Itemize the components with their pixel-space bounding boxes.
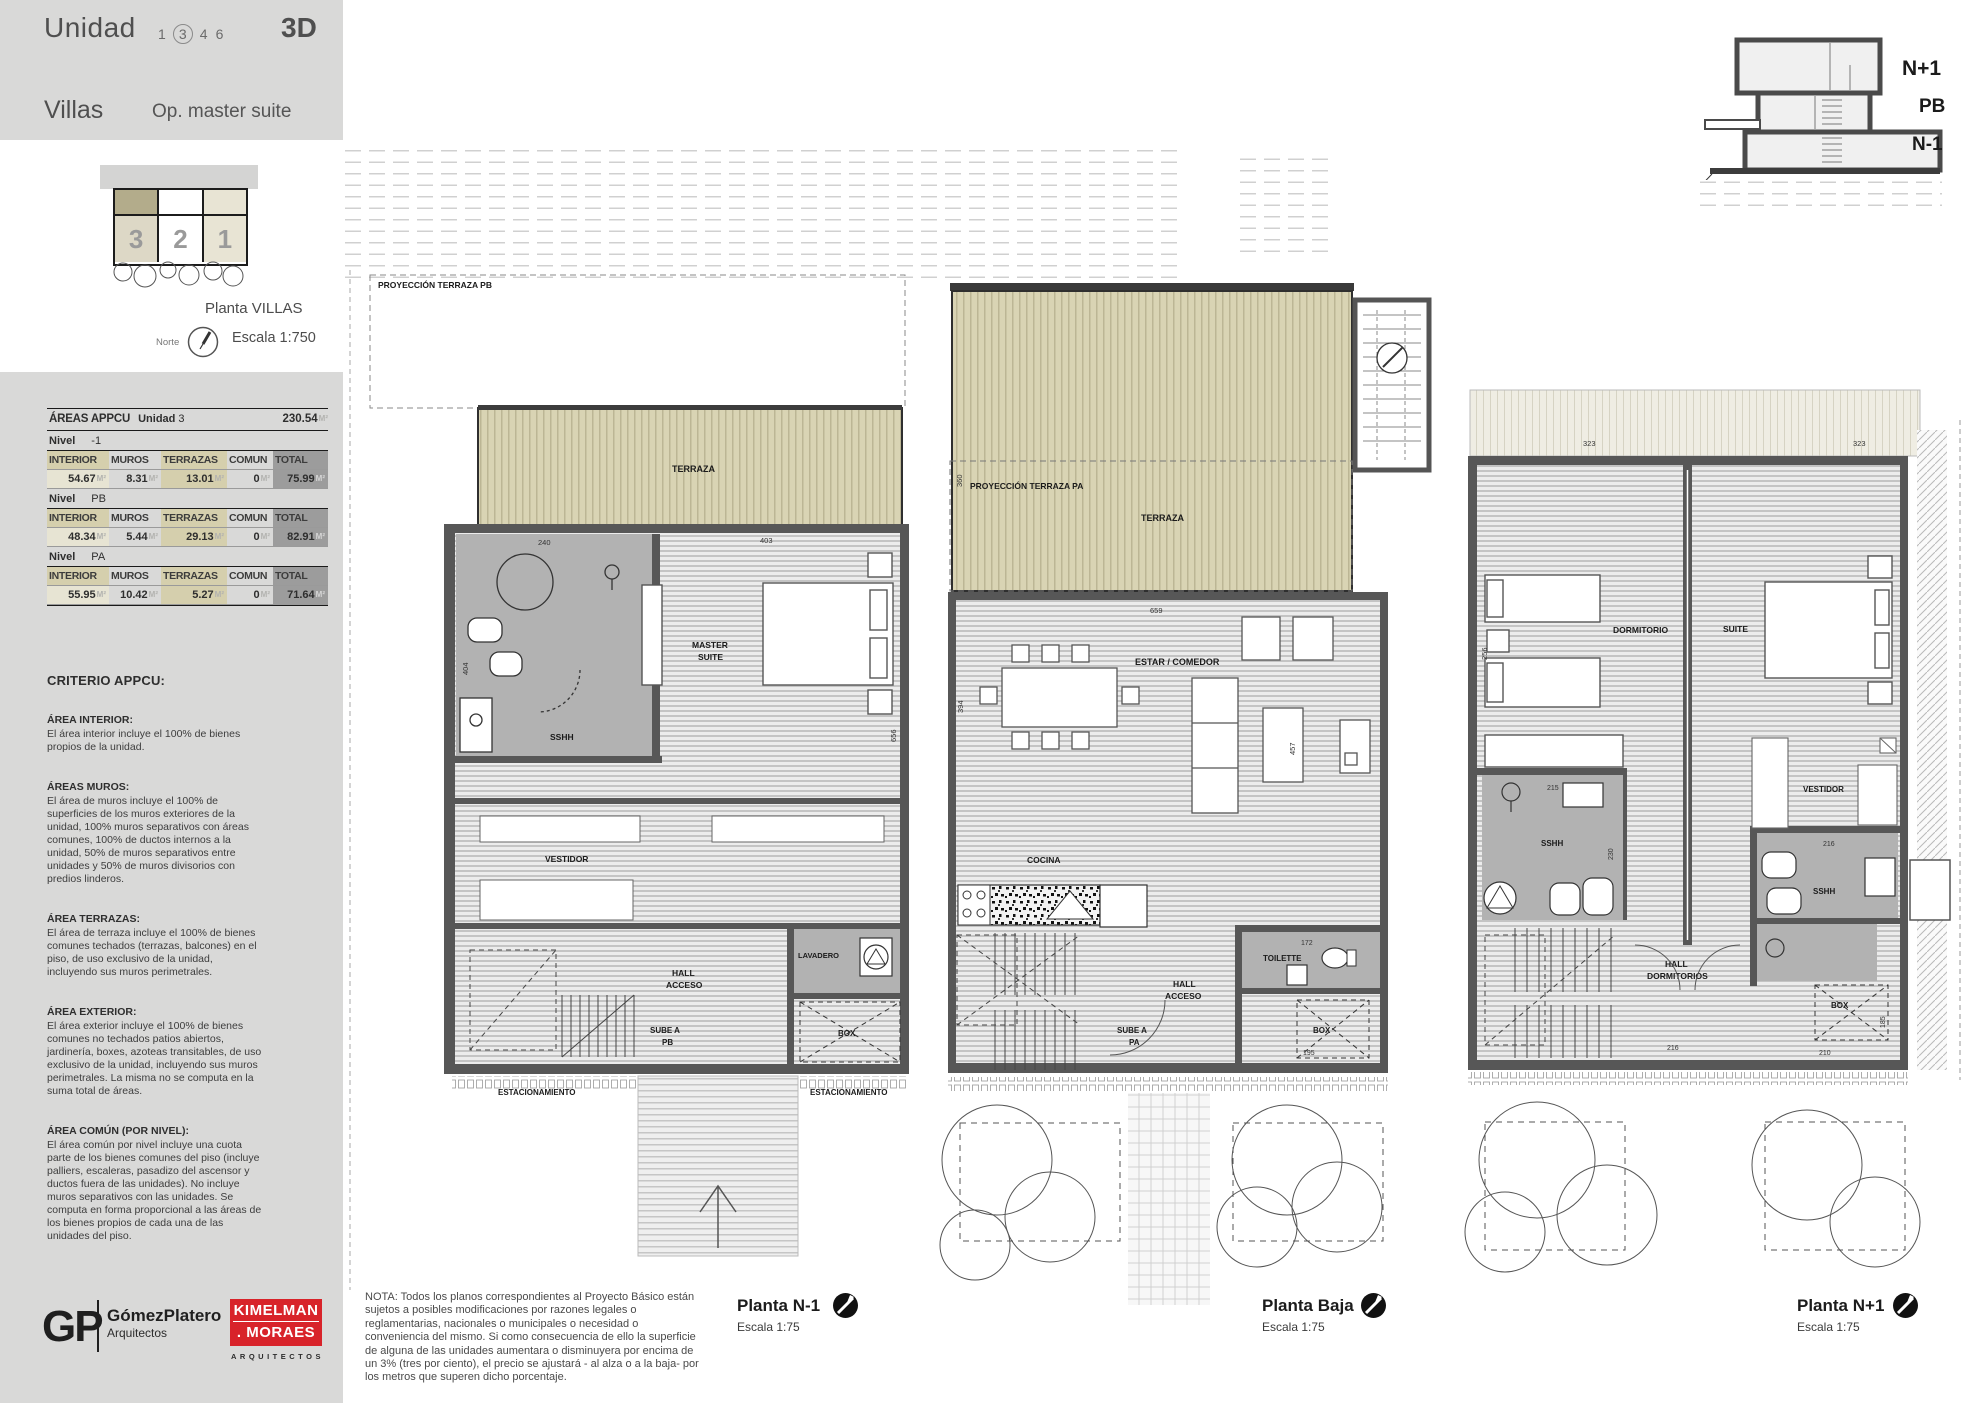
- gp-logo-divider: [97, 1300, 99, 1352]
- terrace-edge: [478, 405, 902, 410]
- col-interior: INTERIOR: [47, 451, 109, 470]
- dim-256: 256: [1480, 647, 1489, 660]
- dim-404: 404: [461, 662, 470, 675]
- dim-659: 659: [1150, 606, 1163, 615]
- col-comun: COMUN: [227, 509, 273, 528]
- siteplan-context: [100, 165, 258, 189]
- col-comun: COMUN: [227, 451, 273, 470]
- gp-logo-name: GómezPlatero: [107, 1306, 221, 1326]
- dim-195: 195: [1303, 1050, 1315, 1057]
- siteplan-key: 3 2 1: [113, 188, 248, 266]
- siteplan-trees: [105, 258, 255, 290]
- room-label-sshh-izq: SSHH: [1541, 839, 1563, 848]
- north-label: Norte: [156, 337, 179, 348]
- caption-planta-np1: Planta N+1 Escala 1:75: [1797, 1296, 1884, 1334]
- val-interior: 55.95M²: [47, 586, 109, 605]
- stairs-label-1: SUBE A: [650, 1026, 680, 1035]
- room-label-hall-1: HALL: [1173, 979, 1196, 989]
- val-terrazas: 5.27M²: [161, 586, 227, 605]
- col-terrazas: TERRAZAS: [161, 509, 227, 528]
- dim-457: 457: [1288, 742, 1297, 755]
- val-comun: 0M²: [227, 470, 273, 489]
- dim-656: 656: [889, 729, 898, 742]
- section-label-n1: N-1: [1912, 134, 1943, 155]
- level--1-values: 54.67M² 8.31M² 13.01M² 0M² 75.99M²: [47, 470, 328, 489]
- room-label-sshh: SSHH: [550, 732, 574, 742]
- level-pb-values: 48.34M² 5.44M² 29.13M² 0M² 82.91M²: [47, 528, 328, 547]
- val-muros: 5.44M²: [109, 528, 161, 547]
- level-row-pa: NivelPA: [47, 547, 328, 567]
- level-pa-values: 55.95M² 10.42M² 5.27M² 0M² 71.64M²: [47, 586, 328, 606]
- level-row-pb: NivelPB: [47, 489, 328, 509]
- unidad-label: Unidad: [44, 12, 136, 44]
- room-label-master-1: MASTER: [692, 640, 728, 650]
- siteplan-title: Planta VILLAS: [205, 300, 303, 317]
- paved-walkway: [1128, 1093, 1210, 1305]
- room-label-dormitorio: DORMITORIO: [1613, 625, 1668, 635]
- caption-title: Planta N-1: [737, 1296, 820, 1316]
- unit-option-3-selected[interactable]: 3: [173, 24, 193, 44]
- val-total: 82.91M²: [273, 528, 328, 547]
- stairs-label-2: PB: [662, 1038, 673, 1047]
- level-pa-headers: INTERIOR MUROS TERRAZAS COMUN TOTAL: [47, 567, 328, 586]
- dim-230: 230: [1608, 848, 1615, 860]
- col-interior: INTERIOR: [47, 567, 109, 586]
- section-diagram: N+1 PB N-1: [1690, 10, 1984, 180]
- context-hatch-mid: [1240, 150, 1335, 262]
- north-compass-icon: [186, 325, 220, 359]
- caption-planta-n1: Planta N-1 Escala 1:75: [737, 1296, 820, 1334]
- areas-table-unit-number: 3: [178, 413, 184, 425]
- section-label-np1: N+1: [1902, 57, 1941, 80]
- val-terrazas: 13.01M²: [161, 470, 227, 489]
- col-terrazas: TERRAZAS: [161, 451, 227, 470]
- dim-215: 215: [1547, 785, 1559, 792]
- dim-240: 240: [538, 538, 551, 547]
- val-muros: 10.42M²: [109, 586, 161, 605]
- col-total: TOTAL: [273, 509, 328, 528]
- stairs-label-1: SUBE A: [1117, 1026, 1147, 1035]
- caption-scale: Escala 1:75: [737, 1320, 820, 1334]
- sidewalk-strip: [1468, 1072, 1908, 1085]
- areas-table-unit-label: Unidad: [138, 413, 175, 425]
- siteplan-unit-3: 3: [115, 216, 159, 262]
- planter-box: [1910, 860, 1950, 920]
- room-label-estar: ESTAR / COMEDOR: [1135, 657, 1220, 667]
- gp-logo-sub: Arquitectos: [107, 1326, 167, 1340]
- level-row--1: Nivel-1: [47, 431, 328, 451]
- val-terrazas: 29.13M²: [161, 528, 227, 547]
- section-ground-line: [1692, 174, 1712, 180]
- room-label-box: BOX: [838, 1029, 856, 1038]
- room-label-terraza: TERRAZA: [672, 464, 715, 474]
- val-total: 75.99M²: [273, 470, 328, 489]
- siteplan-terrace-1: [204, 190, 246, 214]
- caption-title: Planta Baja: [1262, 1296, 1354, 1316]
- val-total: 71.64M²: [273, 586, 328, 605]
- unit-option-1[interactable]: 1: [158, 26, 166, 42]
- val-muros: 8.31M²: [109, 470, 161, 489]
- sidewalk-strip: [948, 1077, 1388, 1091]
- col-total: TOTAL: [273, 451, 328, 470]
- dim-403: 403: [760, 536, 773, 545]
- areas-table-total: 230.54M²: [282, 413, 328, 425]
- level-pb-headers: INTERIOR MUROS TERRAZAS COMUN TOTAL: [47, 509, 328, 528]
- plan-n1-drawing: PROYECCIÓN TERRAZA PB TERRAZA SSHH MASTE…: [340, 250, 920, 1310]
- dim-394: 394: [956, 700, 965, 713]
- dim-216a: 216: [1823, 841, 1835, 848]
- room-label-hall-1: HALL: [672, 968, 695, 978]
- room-label-hall-2: ACCESO: [666, 980, 703, 990]
- siteplan-unit-2: 2: [159, 216, 203, 262]
- caption-scale: Escala 1:75: [1797, 1320, 1884, 1334]
- caption-planta-baja: Planta Baja Escala 1:75: [1262, 1296, 1354, 1334]
- criteria-muros: ÁREAS MUROS: El área de muros incluye el…: [47, 781, 265, 886]
- trees: [1465, 1102, 1920, 1272]
- room-label-box: BOX: [1831, 1001, 1849, 1010]
- dim-172: 172: [1301, 940, 1313, 947]
- col-comun: COMUN: [227, 567, 273, 586]
- lavadero-fixtures: [860, 938, 892, 976]
- section-level-n1: [1745, 132, 1940, 170]
- criteria-interior: ÁREA INTERIOR: El área interior incluye …: [47, 714, 265, 754]
- criteria-comun: ÁREA COMÚN (POR NIVEL): El área común po…: [47, 1125, 265, 1243]
- projection-label: PROYECCIÓN TERRAZA PA: [970, 480, 1083, 491]
- villas-label: Villas: [44, 96, 103, 125]
- room-shower: [1757, 924, 1877, 981]
- section-level-pb: [1758, 93, 1870, 132]
- terrace-top-wall: [950, 283, 1354, 291]
- criteria-exterior: ÁREA EXTERIOR: El área exterior incluye …: [47, 1006, 265, 1098]
- col-interior: INTERIOR: [47, 509, 109, 528]
- areas-table-title-row: ÁREAS APPCU Unidad 3 230.54M²: [47, 408, 328, 431]
- dim-360: 360: [955, 474, 964, 487]
- dim-210: 210: [1819, 1050, 1831, 1057]
- room-label-hall-2: ACCESO: [1165, 991, 1202, 1001]
- kimelman-moraes-sub: ARQUITECTOS: [231, 1352, 324, 1361]
- unit-selector: 1346: [154, 24, 227, 44]
- criteria-terrazas: ÁREA TERRAZAS: El área de terraza incluy…: [47, 913, 265, 979]
- dim-216b: 216: [1667, 1045, 1679, 1052]
- kitchen: [958, 885, 1147, 927]
- areas-table: ÁREAS APPCU Unidad 3 230.54M² Nivel-1 IN…: [47, 408, 328, 606]
- unit-option-6[interactable]: 6: [216, 26, 224, 42]
- room-label-box: BOX: [1313, 1026, 1331, 1035]
- label-estacionamiento-der: ESTACIONAMIENTO: [810, 1088, 887, 1097]
- room-label-lavadero: LAVADERO: [798, 951, 839, 960]
- col-muros: MUROS: [109, 509, 161, 528]
- room-label-vestidor: VESTIDOR: [1803, 785, 1844, 794]
- section-canopy: [1705, 120, 1760, 129]
- kimelman-moraes-logo: KIMELMAN . MORAES: [230, 1299, 322, 1346]
- room-label-toilette: TOILETTE: [1263, 954, 1302, 963]
- section-level-np1: [1737, 40, 1880, 93]
- room-label-suite: SUITE: [1723, 624, 1748, 634]
- label-estacionamiento-izq: ESTACIONAMIENTO: [498, 1088, 575, 1097]
- terrace-projection-outline: [370, 275, 905, 408]
- siteplan-terrace-2: [159, 190, 203, 214]
- caption-scale: Escala 1:75: [1262, 1320, 1354, 1334]
- typology-code: 3D: [281, 12, 317, 44]
- garden-hatch-band: [1917, 430, 1947, 1070]
- gp-logo: GP: [42, 1302, 102, 1352]
- plan-np1-drawing: DORMITORIO SUITE VESTIDOR SSHH SSHH: [1455, 360, 1984, 1310]
- level--1-headers: INTERIOR MUROS TERRAZAS COMUN TOTAL: [47, 451, 328, 470]
- val-comun: 0M²: [227, 528, 273, 547]
- col-terrazas: TERRAZAS: [161, 567, 227, 586]
- north-icon: [1892, 1292, 1919, 1319]
- sheet-header: Unidad 1346 3D Villas Op. master suite: [0, 0, 343, 140]
- room-label-sshh-der: SSHH: [1813, 887, 1835, 896]
- unit-option-4[interactable]: 4: [200, 26, 208, 42]
- option-label: Op. master suite: [152, 101, 291, 123]
- terrace-pb: [952, 291, 1352, 591]
- col-muros: MUROS: [109, 567, 161, 586]
- room-label-cocina: COCINA: [1027, 855, 1061, 865]
- section-ground-slab: [1710, 168, 1940, 174]
- dim-323b: 323: [1853, 439, 1866, 448]
- col-total: TOTAL: [273, 567, 328, 586]
- criteria-title: CRITERIO APPCU:: [47, 673, 265, 688]
- caption-title: Planta N+1: [1797, 1296, 1884, 1316]
- room-label-vestidor: VESTIDOR: [545, 854, 588, 864]
- criteria-block: CRITERIO APPCU: ÁREA INTERIOR: El área i…: [47, 673, 265, 1270]
- section-label-pb: PB: [1919, 96, 1945, 117]
- siteplan-scale: Escala 1:750: [232, 330, 316, 346]
- projection-label: PROYECCIÓN TERRAZA PB: [378, 279, 492, 290]
- room-label-terraza: TERRAZA: [1141, 513, 1184, 523]
- room-label-master-2: SUITE: [698, 652, 723, 662]
- north-icon: [832, 1292, 859, 1319]
- dim-323a: 323: [1583, 439, 1596, 448]
- north-icon: [1360, 1292, 1387, 1319]
- val-interior: 48.34M²: [47, 528, 109, 547]
- siteplan-unit-1: 1: [204, 216, 246, 262]
- context-hatch-section: [1700, 178, 1942, 216]
- dim-185: 185: [1880, 1016, 1887, 1028]
- stairs-label-2: PA: [1129, 1038, 1140, 1047]
- val-comun: 0M²: [227, 586, 273, 605]
- areas-table-title: ÁREAS APPCU: [49, 413, 130, 425]
- plan-pb-drawing: PROYECCIÓN TERRAZA PA TERRAZA ESTAR: [935, 255, 1445, 1310]
- col-muros: MUROS: [109, 451, 161, 470]
- siteplan-terrace-3: [115, 190, 159, 214]
- exterior-stair-annex: [1355, 300, 1429, 470]
- val-interior: 54.67M²: [47, 470, 109, 489]
